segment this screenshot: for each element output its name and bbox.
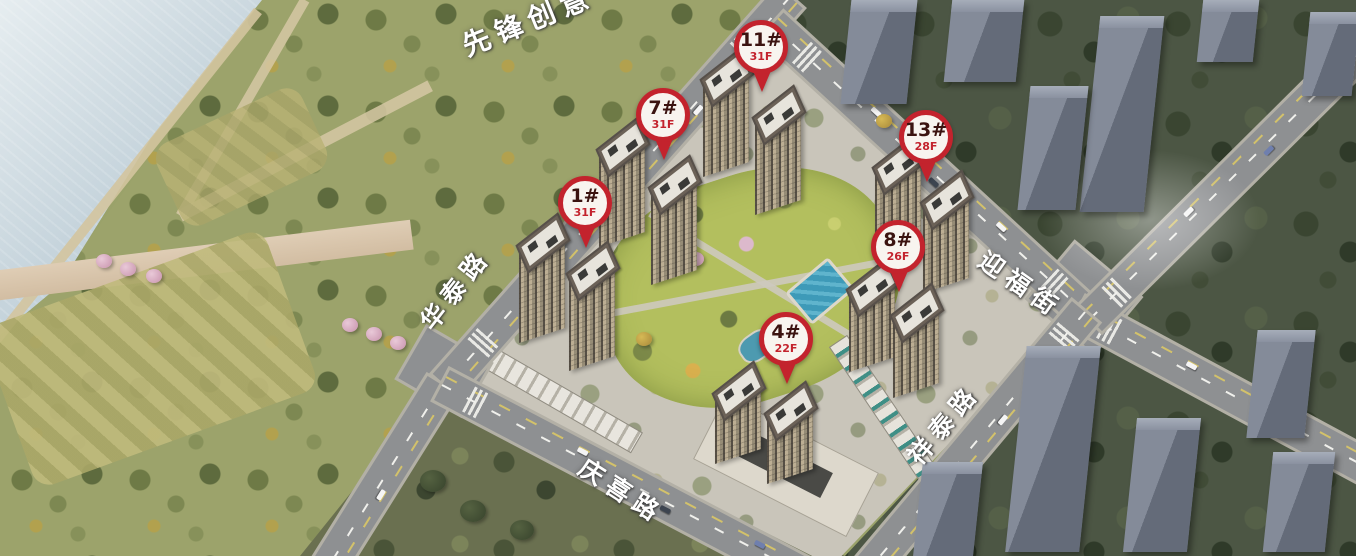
pin-circle: 8# 26F bbox=[871, 220, 925, 274]
pin-circle: 7# 31F bbox=[636, 88, 690, 142]
pin-building-1[interactable]: 1# 31F bbox=[558, 176, 614, 250]
autumn-tree bbox=[636, 332, 652, 346]
building-number: 13# bbox=[905, 121, 947, 140]
blossom-tree bbox=[390, 336, 406, 350]
building-floors: 22F bbox=[775, 342, 798, 356]
building-number: 4# bbox=[771, 323, 800, 342]
pin-building-11[interactable]: 11# 31F bbox=[734, 20, 790, 94]
pin-building-13[interactable]: 13# 28F bbox=[899, 110, 955, 184]
blossom-tree bbox=[366, 327, 382, 341]
gray-tower bbox=[1263, 452, 1336, 552]
building-floors: 31F bbox=[652, 118, 675, 132]
tower-4a bbox=[712, 376, 766, 464]
building-floors: 31F bbox=[750, 50, 773, 64]
tower-7b bbox=[648, 170, 702, 285]
tower-11b bbox=[752, 100, 806, 215]
car bbox=[1186, 361, 1198, 371]
gray-tower bbox=[913, 462, 983, 556]
building-floors: 26F bbox=[887, 250, 910, 264]
blossom-tree bbox=[96, 254, 112, 268]
car bbox=[997, 414, 1008, 426]
building-number: 11# bbox=[740, 31, 782, 50]
tower-4b bbox=[764, 396, 818, 484]
car bbox=[1263, 145, 1274, 156]
tree bbox=[510, 520, 534, 540]
pin-building-8[interactable]: 8# 26F bbox=[871, 220, 927, 294]
building-number: 1# bbox=[570, 187, 599, 206]
gray-tower bbox=[1246, 330, 1315, 438]
blossom-tree bbox=[342, 318, 358, 332]
car bbox=[376, 489, 386, 501]
blossom-tree bbox=[146, 269, 162, 283]
building-number: 7# bbox=[648, 99, 677, 118]
crosswalk bbox=[462, 387, 489, 419]
crosswalk bbox=[792, 42, 823, 73]
building-floors: 31F bbox=[574, 206, 597, 220]
gray-tower bbox=[841, 0, 918, 104]
car bbox=[996, 221, 1007, 232]
tree bbox=[460, 500, 486, 522]
building-number: 8# bbox=[883, 231, 912, 250]
pin-circle: 4# 22F bbox=[759, 312, 813, 366]
gray-tower bbox=[1197, 0, 1260, 62]
pin-circle: 13# 28F bbox=[899, 110, 953, 164]
pin-building-4[interactable]: 4# 22F bbox=[759, 312, 815, 386]
blossom-tree bbox=[120, 262, 136, 276]
gray-tower bbox=[1302, 12, 1356, 96]
tree bbox=[420, 470, 446, 492]
pin-building-7[interactable]: 7# 31F bbox=[636, 88, 692, 162]
autumn-tree bbox=[876, 114, 892, 128]
pin-circle: 11# 31F bbox=[734, 20, 788, 74]
gray-tower bbox=[944, 0, 1025, 82]
tower-8b bbox=[890, 298, 944, 398]
car bbox=[754, 540, 766, 550]
tower-13b bbox=[920, 185, 974, 293]
pin-circle: 1# 31F bbox=[558, 176, 612, 230]
tower-1b bbox=[566, 256, 620, 371]
masterplan-scene: 先锋创意 华泰路 迎福街 祥泰路 庆喜路 1# 31F 4# 22F 7# 31… bbox=[0, 0, 1356, 556]
building-floors: 28F bbox=[915, 140, 938, 154]
crosswalk bbox=[467, 328, 499, 359]
